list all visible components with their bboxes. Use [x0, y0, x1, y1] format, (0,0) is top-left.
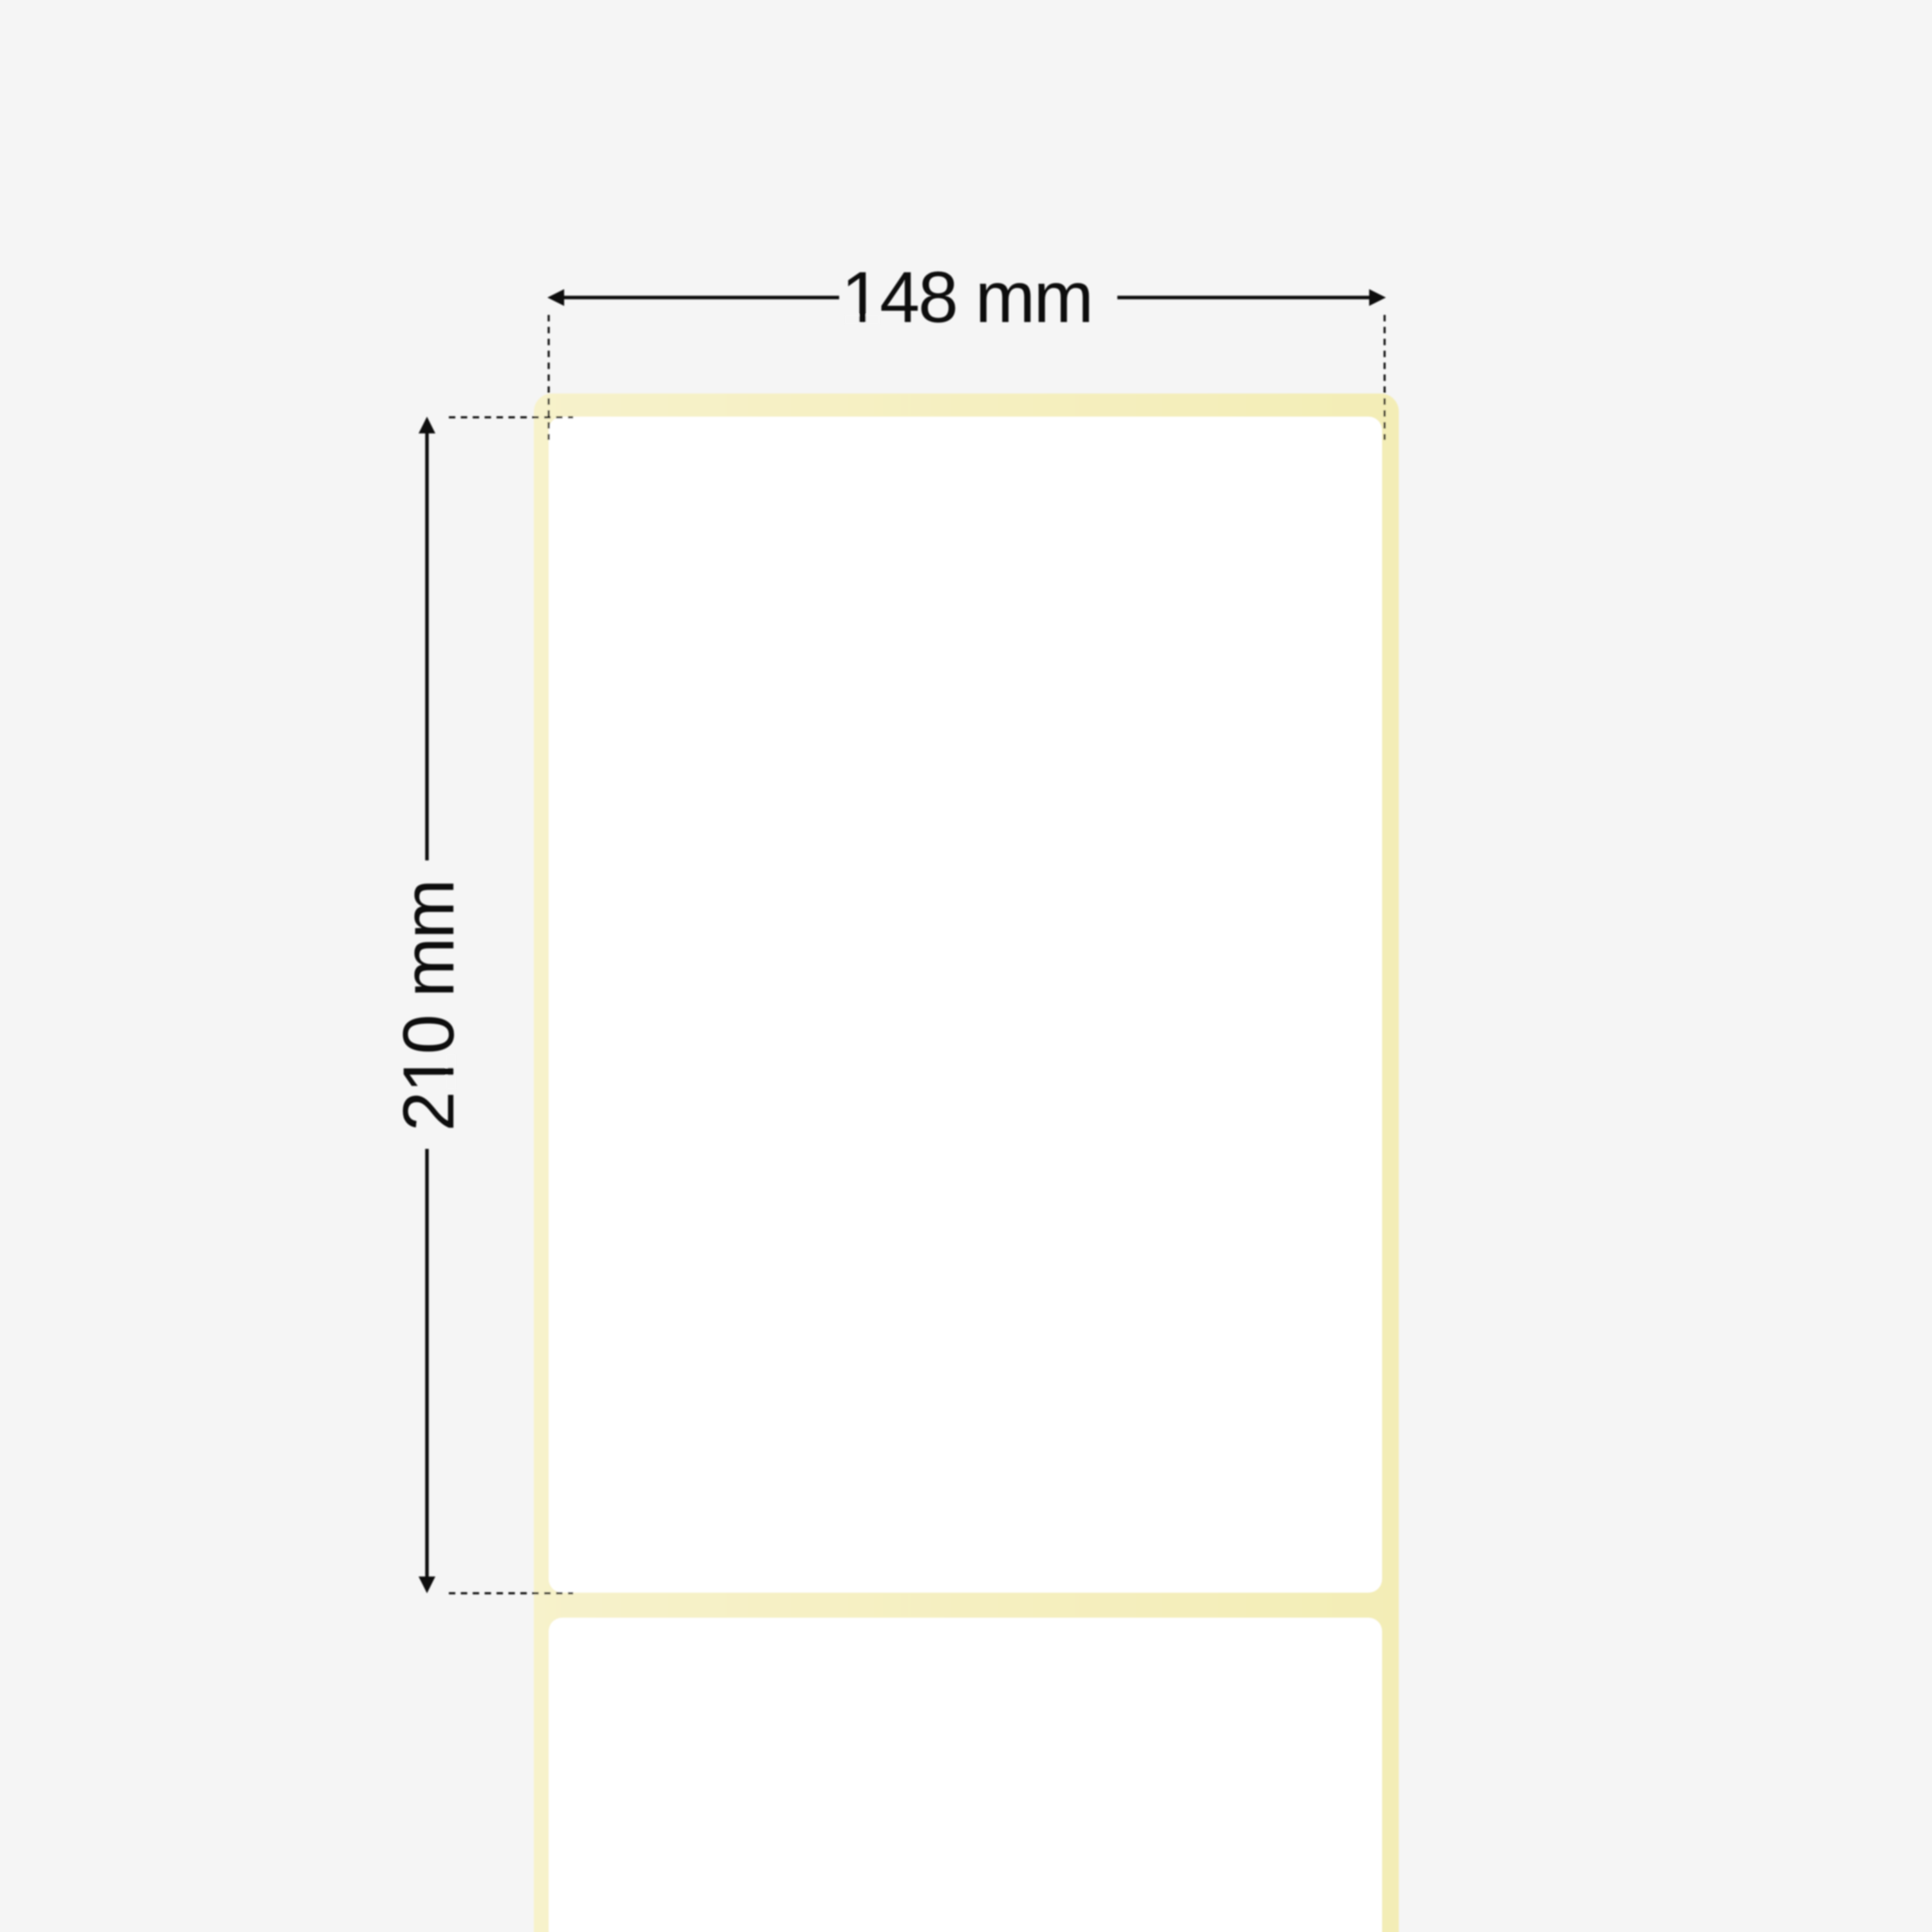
svg-text:148 mm: 148 mm — [841, 257, 1092, 337]
svg-text:210 mm: 210 mm — [388, 880, 469, 1132]
